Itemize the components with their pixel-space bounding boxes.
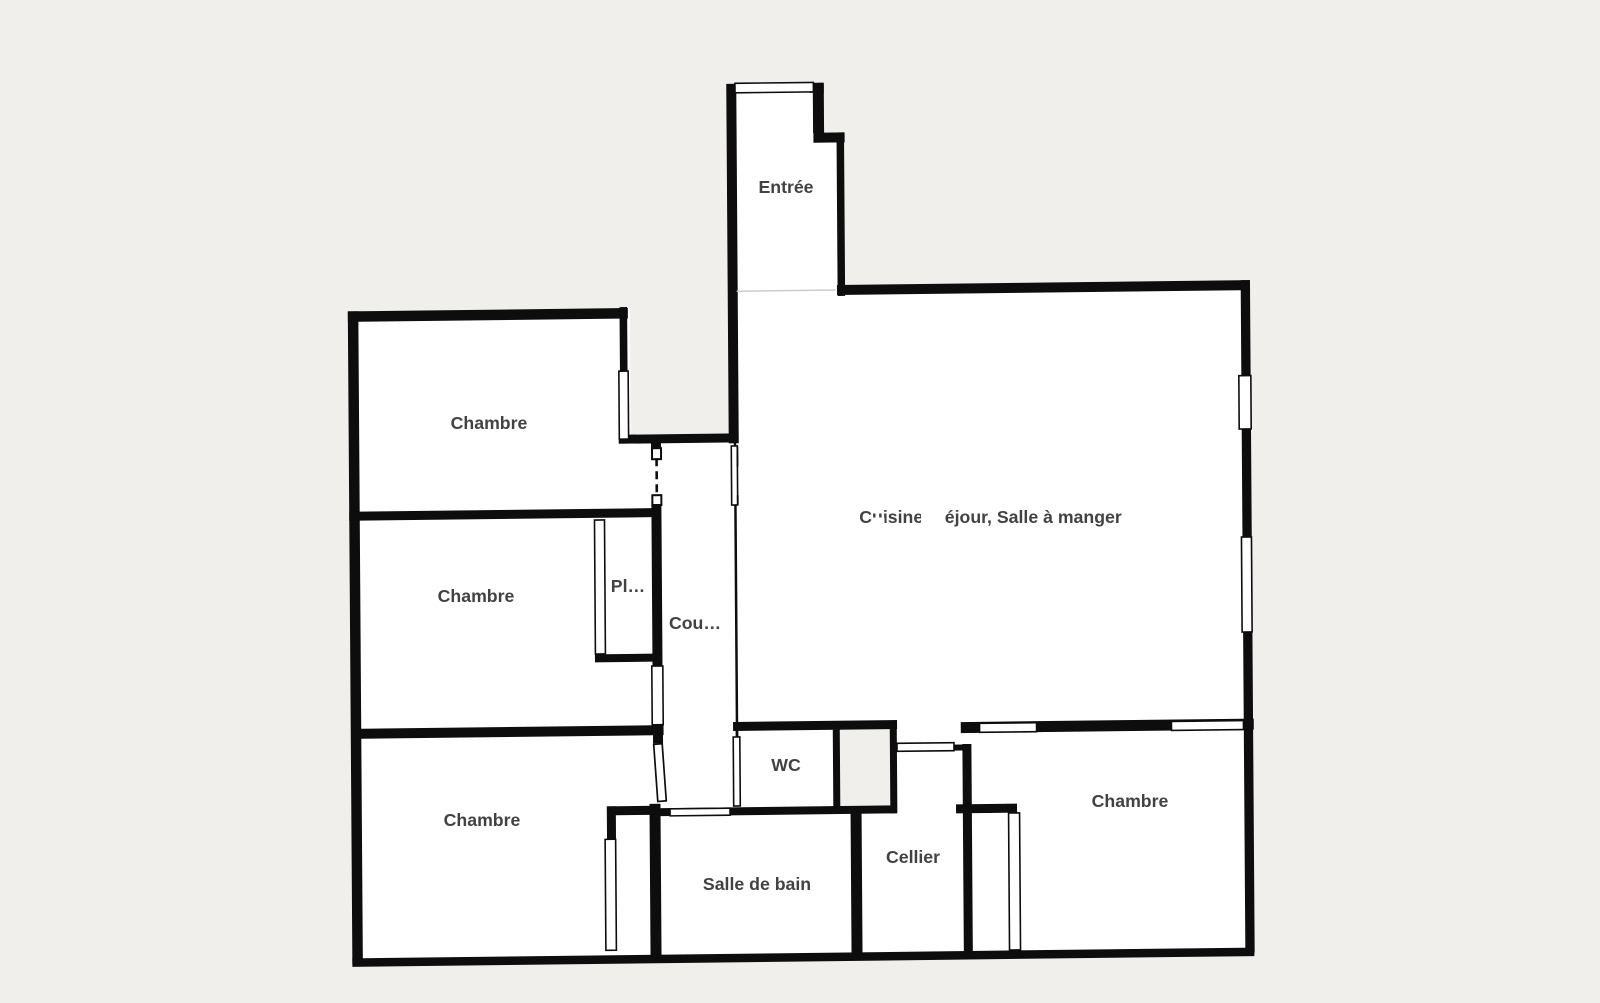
svg-text:Chambre: Chambre xyxy=(438,586,515,606)
svg-text:Chambre: Chambre xyxy=(451,413,528,433)
svg-text:Pl…: Pl… xyxy=(611,576,645,596)
svg-text:Salle de bain: Salle de bain xyxy=(703,874,811,894)
svg-text:Cuisine, Séjour, Salle à mange: Cuisine, Séjour, Salle à manger xyxy=(859,507,1122,527)
svg-text:Cou…: Cou… xyxy=(669,613,721,633)
svg-text:Cellier: Cellier xyxy=(886,847,940,867)
svg-text:Chambre: Chambre xyxy=(444,810,521,830)
svg-text:WC: WC xyxy=(771,755,801,775)
svg-text:Chambre: Chambre xyxy=(1092,791,1169,811)
svg-text:Entrée: Entrée xyxy=(758,177,813,197)
